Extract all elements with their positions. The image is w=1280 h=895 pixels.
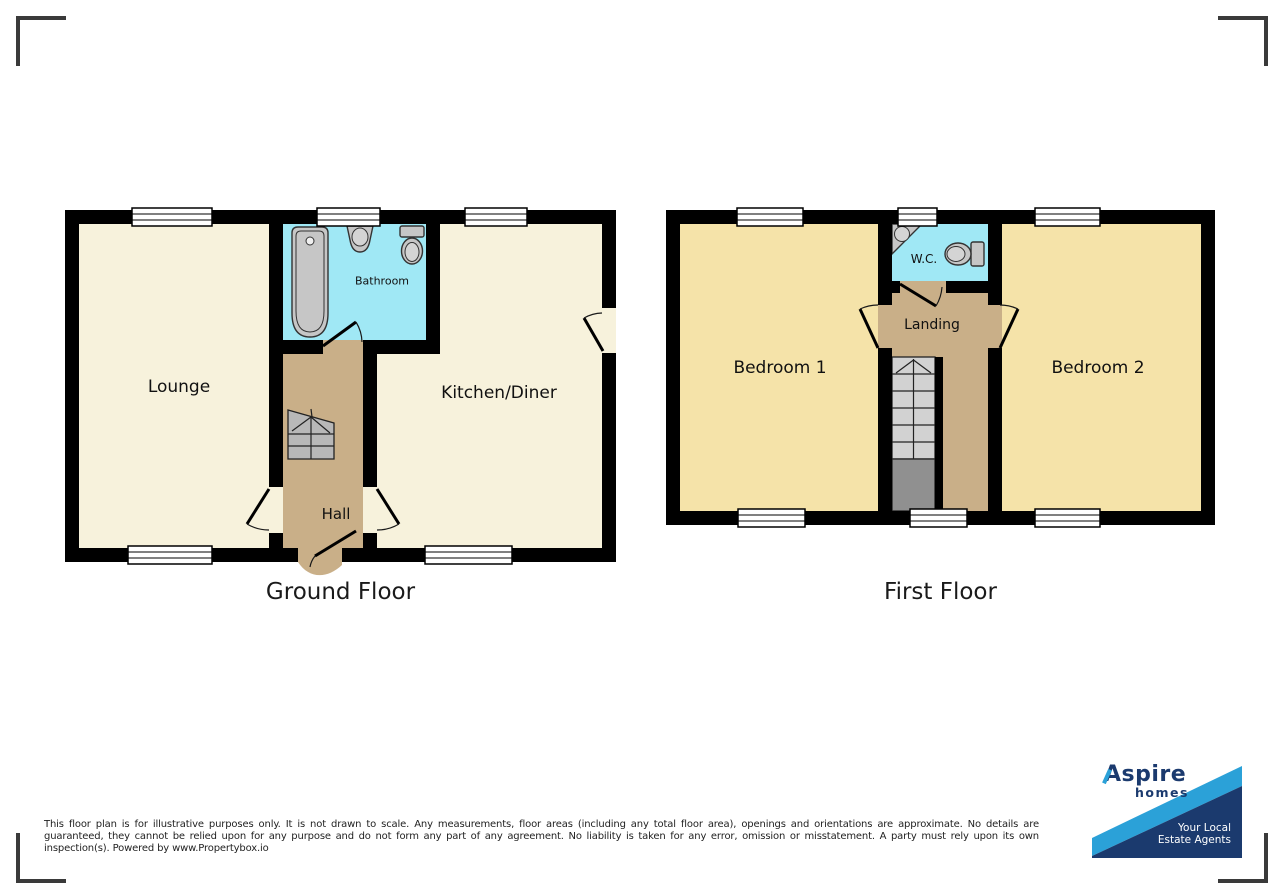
logo-brand-sub-text: homes: [1135, 785, 1189, 800]
room-label-bathroom: Bathroom: [355, 275, 409, 288]
floorplan-page: Lounge Bathroom Kitchen/Diner Hall Groun…: [0, 0, 1280, 895]
front-door-swing-area: [298, 562, 342, 575]
room-label-wc: W.C.: [911, 252, 938, 266]
aspire-homes-logo: Aspire homes Your Local Estate Agents: [1092, 760, 1242, 858]
disclaimer-text: This floor plan is for illustrative purp…: [44, 819, 1039, 856]
ground-floor-title: Ground Floor: [65, 579, 616, 605]
room-label-bedroom-2: Bedroom 2: [1051, 358, 1144, 378]
front-door-opening: [298, 548, 342, 562]
toilet-icon: [945, 242, 984, 266]
bathtub-icon: [292, 227, 328, 337]
corner-crop-mark-top-left: [16, 16, 66, 66]
bedroom1-door-opening: [878, 305, 892, 348]
bedroom2-door-opening: [988, 305, 1002, 348]
first-floor-plan: Bedroom 1 W.C. Landing Bedroom 2: [666, 210, 1215, 525]
toilet-icon: [400, 226, 424, 264]
lounge-door-opening: [269, 487, 283, 533]
room-label-bedroom-1: Bedroom 1: [733, 358, 826, 378]
room-label-lounge: Lounge: [148, 377, 210, 397]
logo-tagline: Your Local Estate Agents: [1158, 822, 1231, 846]
room-label-landing: Landing: [904, 317, 960, 333]
first-floor-title: First Floor: [666, 579, 1215, 605]
room-label-hall: Hall: [322, 505, 351, 523]
back-door-opening: [602, 308, 616, 353]
logo-brand-text: Aspire: [1104, 762, 1186, 787]
stairs-icon: [892, 357, 935, 511]
ground-floor-plan: Lounge Bathroom Kitchen/Diner Hall: [65, 210, 616, 562]
room-label-kitchen-diner: Kitchen/Diner: [441, 383, 557, 403]
corner-crop-mark-top-right: [1218, 16, 1268, 66]
kitchen-door-opening: [363, 487, 377, 533]
